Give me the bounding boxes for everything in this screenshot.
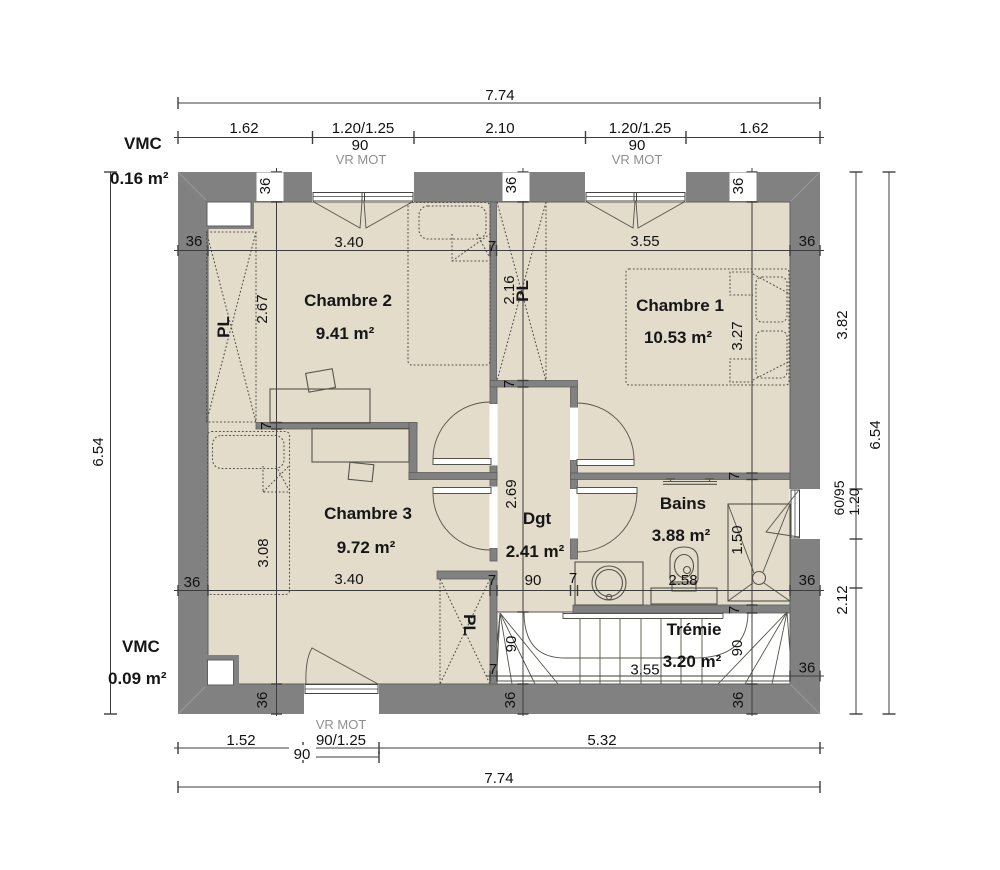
svg-text:1.62: 1.62 — [739, 120, 768, 137]
svg-text:1.20/1.25: 1.20/1.25 — [332, 120, 395, 137]
svg-text:60/95: 60/95 — [831, 480, 847, 515]
svg-text:7: 7 — [258, 422, 275, 430]
svg-text:VMC: VMC — [124, 134, 162, 153]
svg-text:Chambre 3: Chambre 3 — [324, 504, 412, 523]
svg-text:VR MOT: VR MOT — [316, 717, 367, 732]
svg-text:3.40: 3.40 — [334, 571, 363, 588]
svg-text:VMC: VMC — [122, 637, 160, 656]
svg-text:36: 36 — [799, 660, 816, 677]
svg-text:7.74: 7.74 — [484, 770, 513, 787]
svg-text:1.20/1.25: 1.20/1.25 — [609, 120, 672, 137]
svg-text:36: 36 — [730, 692, 747, 709]
svg-text:36: 36 — [254, 692, 271, 709]
svg-text:36: 36 — [799, 233, 816, 250]
svg-text:Dgt: Dgt — [523, 509, 552, 528]
svg-text:PL: PL — [214, 316, 233, 338]
svg-text:1.52: 1.52 — [226, 732, 255, 749]
svg-text:90: 90 — [729, 640, 746, 657]
svg-text:7: 7 — [488, 572, 496, 589]
svg-text:2.12: 2.12 — [834, 585, 851, 614]
svg-text:3.82: 3.82 — [834, 310, 851, 339]
svg-text:VR MOT: VR MOT — [612, 152, 663, 167]
svg-text:Bains: Bains — [660, 494, 706, 513]
svg-text:90: 90 — [503, 636, 520, 653]
svg-text:36: 36 — [730, 178, 747, 195]
svg-text:VR MOT: VR MOT — [336, 152, 387, 167]
svg-text:10.53 m²: 10.53 m² — [644, 328, 712, 347]
svg-text:2.67: 2.67 — [254, 294, 271, 323]
svg-text:90: 90 — [294, 746, 311, 763]
svg-text:36: 36 — [184, 574, 201, 591]
svg-text:2.41 m²: 2.41 m² — [506, 542, 565, 561]
svg-text:5.32: 5.32 — [587, 732, 616, 749]
svg-text:3.08: 3.08 — [255, 538, 272, 567]
svg-text:7: 7 — [489, 661, 497, 678]
svg-text:0.16 m²: 0.16 m² — [110, 169, 169, 188]
svg-text:3.40: 3.40 — [334, 234, 363, 251]
svg-text:Chambre 1: Chambre 1 — [636, 296, 724, 315]
svg-text:6.54: 6.54 — [867, 420, 884, 449]
svg-text:6.54: 6.54 — [90, 437, 107, 466]
svg-text:36: 36 — [186, 233, 203, 250]
svg-text:2.69: 2.69 — [503, 479, 520, 508]
svg-text:3.27: 3.27 — [729, 321, 746, 350]
svg-text:1.62: 1.62 — [229, 120, 258, 137]
svg-text:9.72 m²: 9.72 m² — [337, 538, 396, 557]
svg-text:Chambre 2: Chambre 2 — [304, 291, 392, 310]
svg-text:7: 7 — [726, 472, 743, 480]
svg-text:PL: PL — [460, 614, 479, 636]
svg-text:Trémie: Trémie — [667, 620, 722, 639]
svg-text:3.55: 3.55 — [630, 662, 659, 679]
svg-text:3.20 m²: 3.20 m² — [663, 652, 722, 671]
svg-text:7: 7 — [501, 380, 518, 388]
svg-text:2.10: 2.10 — [485, 120, 514, 137]
svg-text:36: 36 — [799, 572, 816, 589]
svg-text:1.20: 1.20 — [846, 488, 862, 515]
svg-text:7: 7 — [569, 570, 577, 587]
svg-text:2.58: 2.58 — [668, 572, 697, 589]
svg-text:7: 7 — [488, 238, 496, 255]
svg-text:36: 36 — [502, 692, 519, 709]
svg-text:2.16: 2.16 — [501, 275, 518, 304]
svg-text:7: 7 — [726, 606, 743, 614]
svg-text:90/1.25: 90/1.25 — [316, 732, 366, 749]
svg-text:36: 36 — [257, 178, 274, 195]
svg-text:7.74: 7.74 — [485, 87, 514, 104]
svg-text:90: 90 — [525, 572, 542, 589]
svg-text:9.41 m²: 9.41 m² — [316, 324, 375, 343]
svg-text:0.09 m²: 0.09 m² — [108, 669, 167, 688]
svg-text:1.50: 1.50 — [729, 525, 746, 554]
svg-text:36: 36 — [503, 177, 520, 194]
svg-text:3.55: 3.55 — [630, 233, 659, 250]
svg-text:3.88 m²: 3.88 m² — [652, 526, 711, 545]
